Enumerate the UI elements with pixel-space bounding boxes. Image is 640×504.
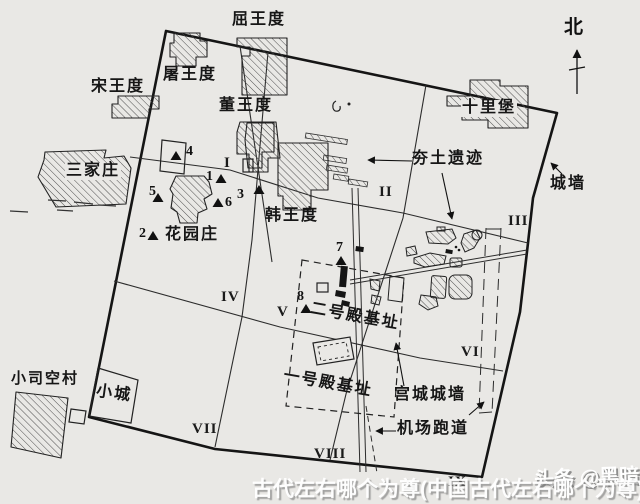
village-label-songwangdu: 宋王度 xyxy=(91,79,145,96)
small-rect-palace xyxy=(317,283,328,292)
zone-label-5: V xyxy=(277,304,289,321)
shape-xiaosikongcun xyxy=(11,392,68,458)
shape-hanwangdu xyxy=(278,143,328,210)
shape-quwangdu xyxy=(237,38,287,95)
village-label-quwangdu: 屈王度 xyxy=(232,12,286,29)
village-label-hanwangdu: 韩王度 xyxy=(265,208,319,225)
small-marks xyxy=(333,101,351,111)
village-label-sanjiazhuang: 三家庄 xyxy=(65,163,121,180)
marker-label-7: 7 xyxy=(336,240,343,256)
village-label-dongwangdu: 董王度 xyxy=(219,98,273,115)
site-map: 北 屈王度 宋王度 屠王度 董王度 十里堡 三家庄 韩王度 花园庄 小司空村 小… xyxy=(0,0,640,504)
zone-label-3: III xyxy=(508,213,529,230)
north-label: 北 xyxy=(564,12,583,39)
marker-label-6: 6 xyxy=(225,195,232,211)
marker-label-2: 2 xyxy=(139,226,146,242)
shape-han-north xyxy=(245,123,274,168)
feature-label-runway: 机场跑道 xyxy=(397,421,469,438)
triangle-2 xyxy=(148,231,159,240)
zone-label-1: I xyxy=(224,155,231,172)
shape-songwangdu xyxy=(112,96,159,118)
zone-label-2: II xyxy=(379,184,393,201)
village-label-shilipu: 十里堡 xyxy=(461,100,517,117)
triangle-4 xyxy=(171,151,182,160)
watermark-caption: 古代左右哪个为尊(中国古代左右哪个为尊) xyxy=(252,473,640,503)
triangle-6 xyxy=(213,198,224,207)
marker-label-8: 8 xyxy=(297,289,304,305)
feature-label-city-wall: 城墙 xyxy=(550,176,586,193)
marker-label-1: 1 xyxy=(206,169,213,185)
zone-label-8: VIII xyxy=(314,446,346,463)
marker-label-5: 5 xyxy=(149,184,156,200)
map-geometry xyxy=(0,0,640,504)
xiaosikong-gate xyxy=(69,409,86,424)
zone-label-4: IV xyxy=(221,289,240,306)
zone-label-6: VI xyxy=(461,344,480,361)
triangle-7 xyxy=(336,256,347,265)
marker-label-3: 3 xyxy=(237,187,244,203)
feature-label-rammed-earth: 夯土遗迹 xyxy=(412,151,484,168)
triangle-3 xyxy=(254,185,265,194)
feature-label-palace-wall: 宫城城墙 xyxy=(394,387,466,404)
triangle-1 xyxy=(216,174,227,183)
zone-label-7: VII xyxy=(192,421,218,438)
north-arrow xyxy=(569,50,585,94)
village-label-tuwangdu: 屠王度 xyxy=(163,67,217,84)
village-label-huayuanzhuang: 花园庄 xyxy=(165,227,219,244)
marker-label-4: 4 xyxy=(186,144,193,160)
village-label-xiaosikongcun: 小司空村 xyxy=(11,372,79,388)
